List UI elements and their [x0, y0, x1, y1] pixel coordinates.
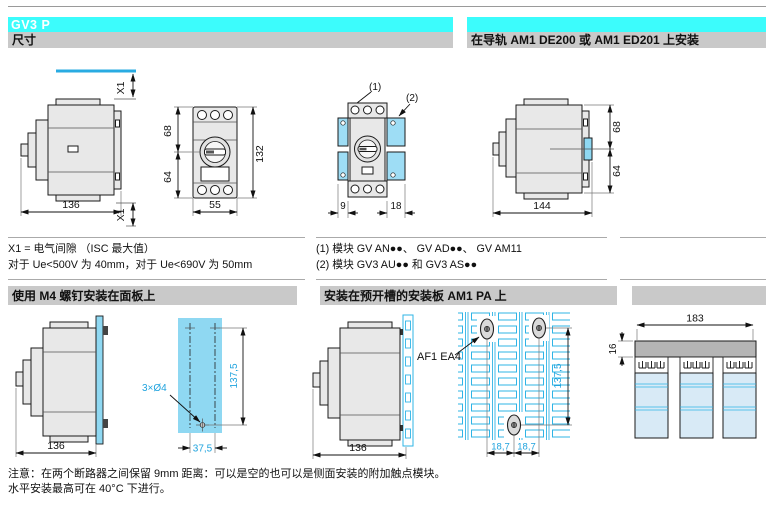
fixing-clip-af1ea4: [481, 319, 494, 339]
front-view-drawing: 68 64 132 55: [163, 95, 275, 223]
dim-rail-68: 68: [611, 121, 623, 133]
notes-rule: [620, 237, 766, 238]
screw-head: [103, 419, 108, 428]
busbar-drawing: 183 16: [612, 313, 774, 453]
right-module: [387, 118, 405, 180]
x1-note: X1 = 电气间隙 （ISC 最大值） 对于 Ue<500V 为 40mm，对于…: [8, 241, 252, 273]
left-module: [338, 118, 348, 180]
dim-template-37-5: 37,5: [193, 444, 213, 455]
dim-depth-136: 136: [62, 199, 80, 211]
dim-plate-18-7b: 18,7: [517, 442, 536, 453]
slotted-side-drawing: 136: [303, 315, 423, 460]
catalog-page: GV3 P 尺寸 在导轨 AM1 DE200 或 AM1 ED201 上安装 X…: [0, 0, 774, 518]
dim-plate-18-7a: 18,7: [491, 442, 510, 453]
breaker-side-profile: [16, 322, 96, 442]
module-note-line1: (1) 模块 GV AN●●、 GV AD●●、 GV AM11: [316, 241, 522, 257]
rail-view-drawing: 68 64 144: [490, 85, 640, 220]
section-empty-header: [632, 286, 766, 305]
notes-rule: [316, 237, 607, 238]
dim-busbar-16: 16: [608, 343, 619, 354]
dim-front-55: 55: [209, 199, 221, 211]
clip-ref-label: AF1 EA4: [417, 351, 461, 363]
caution-note: 注意：在两个断路器之间保留 9mm 距离：可以是空的也可以是侧面安装的附加触点模…: [8, 467, 446, 496]
dim-plate-137-5: 137,5: [553, 363, 564, 388]
dim-front-68: 68: [162, 125, 174, 137]
x1-note-line2: 对于 Ue<500V 为 40mm，对于 Ue<690V 为 50mm: [8, 257, 252, 273]
section-dimensions-header: 尺寸: [8, 32, 453, 48]
breaker-unit: [680, 357, 713, 438]
callout-1: (1): [369, 82, 381, 93]
page-top-rule: [8, 6, 766, 7]
rotary-knob: [200, 137, 230, 167]
dim-front-64: 64: [162, 171, 174, 183]
module-view-drawing: (1) (2): [325, 72, 460, 224]
module-note: (1) 模块 GV AN●●、 GV AD●●、 GV AM11 (2) 模块 …: [316, 241, 522, 273]
breaker-side-profile: [313, 322, 400, 446]
dim-x1-bottom: X1: [115, 208, 127, 221]
breaker-unit: [723, 357, 756, 438]
product-band-right: [467, 17, 766, 32]
callout-2: (2): [406, 93, 418, 104]
dim-busbar-183: 183: [686, 313, 704, 325]
mounting-panel: [96, 316, 103, 444]
dim-panel-136: 136: [47, 440, 65, 452]
dim-front-132: 132: [254, 145, 266, 163]
screw-head: [103, 326, 108, 335]
slotted-plate: [403, 315, 413, 446]
section-rail-title: 在导轨 AM1 DE200 或 AM1 ED201 上安装: [467, 32, 766, 48]
notes-rule: [316, 279, 607, 280]
perforated-plate-drawing: AF1 EA4 137,5 18,7 18,7: [415, 310, 579, 460]
module-note-line2: (2) 模块 GV3 AU●● 和 GV3 AS●●: [316, 257, 522, 273]
section-plate-title: 安装在预开槽的安装板 AM1 PA 上: [320, 286, 617, 305]
busbar-comb: [635, 341, 756, 357]
section-rail-header: 在导轨 AM1 DE200 或 AM1 ED201 上安装: [467, 32, 766, 48]
dim-module-9: 9: [340, 201, 345, 212]
section-panel-title: 使用 M4 螺钉安装在面板上: [8, 286, 297, 305]
drilling-template-drawing: 3×Ø4 137,5 37,5: [140, 315, 258, 460]
section-dimensions-title: 尺寸: [8, 32, 453, 48]
product-band: GV3 P: [8, 17, 453, 32]
notes-rule: [8, 237, 305, 238]
dim-x1-top: X1: [115, 81, 127, 94]
panel-side-drawing: 136: [8, 312, 120, 460]
breaker-side-profile: [21, 99, 121, 201]
caution-line1: 注意：在两个断路器之间保留 9mm 距离：可以是空的也可以是侧面安装的附加触点模…: [8, 467, 446, 482]
fixing-clip-af1ea4: [533, 318, 546, 338]
dim-module-18: 18: [391, 201, 402, 212]
product-title: GV3 P: [8, 17, 453, 32]
side-view-drawing: X1 136 X1: [8, 58, 158, 230]
section-panel-header: 使用 M4 螺钉安装在面板上: [8, 286, 297, 305]
rotary-knob: [355, 136, 381, 162]
x1-note-line1: X1 = 电气间隙 （ISC 最大值）: [8, 241, 252, 257]
notes-rule: [620, 279, 766, 280]
dim-holes-3xd4: 3×Ø4: [142, 383, 167, 394]
breaker-unit: [635, 357, 668, 438]
fixing-clip-af1ea4: [508, 415, 521, 435]
dim-template-137-5: 137,5: [229, 363, 240, 388]
dim-slotted-136: 136: [349, 442, 367, 454]
section-plate-header: 安装在预开槽的安装板 AM1 PA 上: [320, 286, 617, 305]
dim-rail-64: 64: [611, 165, 623, 177]
notes-rule: [8, 279, 305, 280]
caution-line2: 水平安装最高可在 40°C 下进行。: [8, 482, 446, 497]
dim-rail-144: 144: [533, 200, 551, 212]
